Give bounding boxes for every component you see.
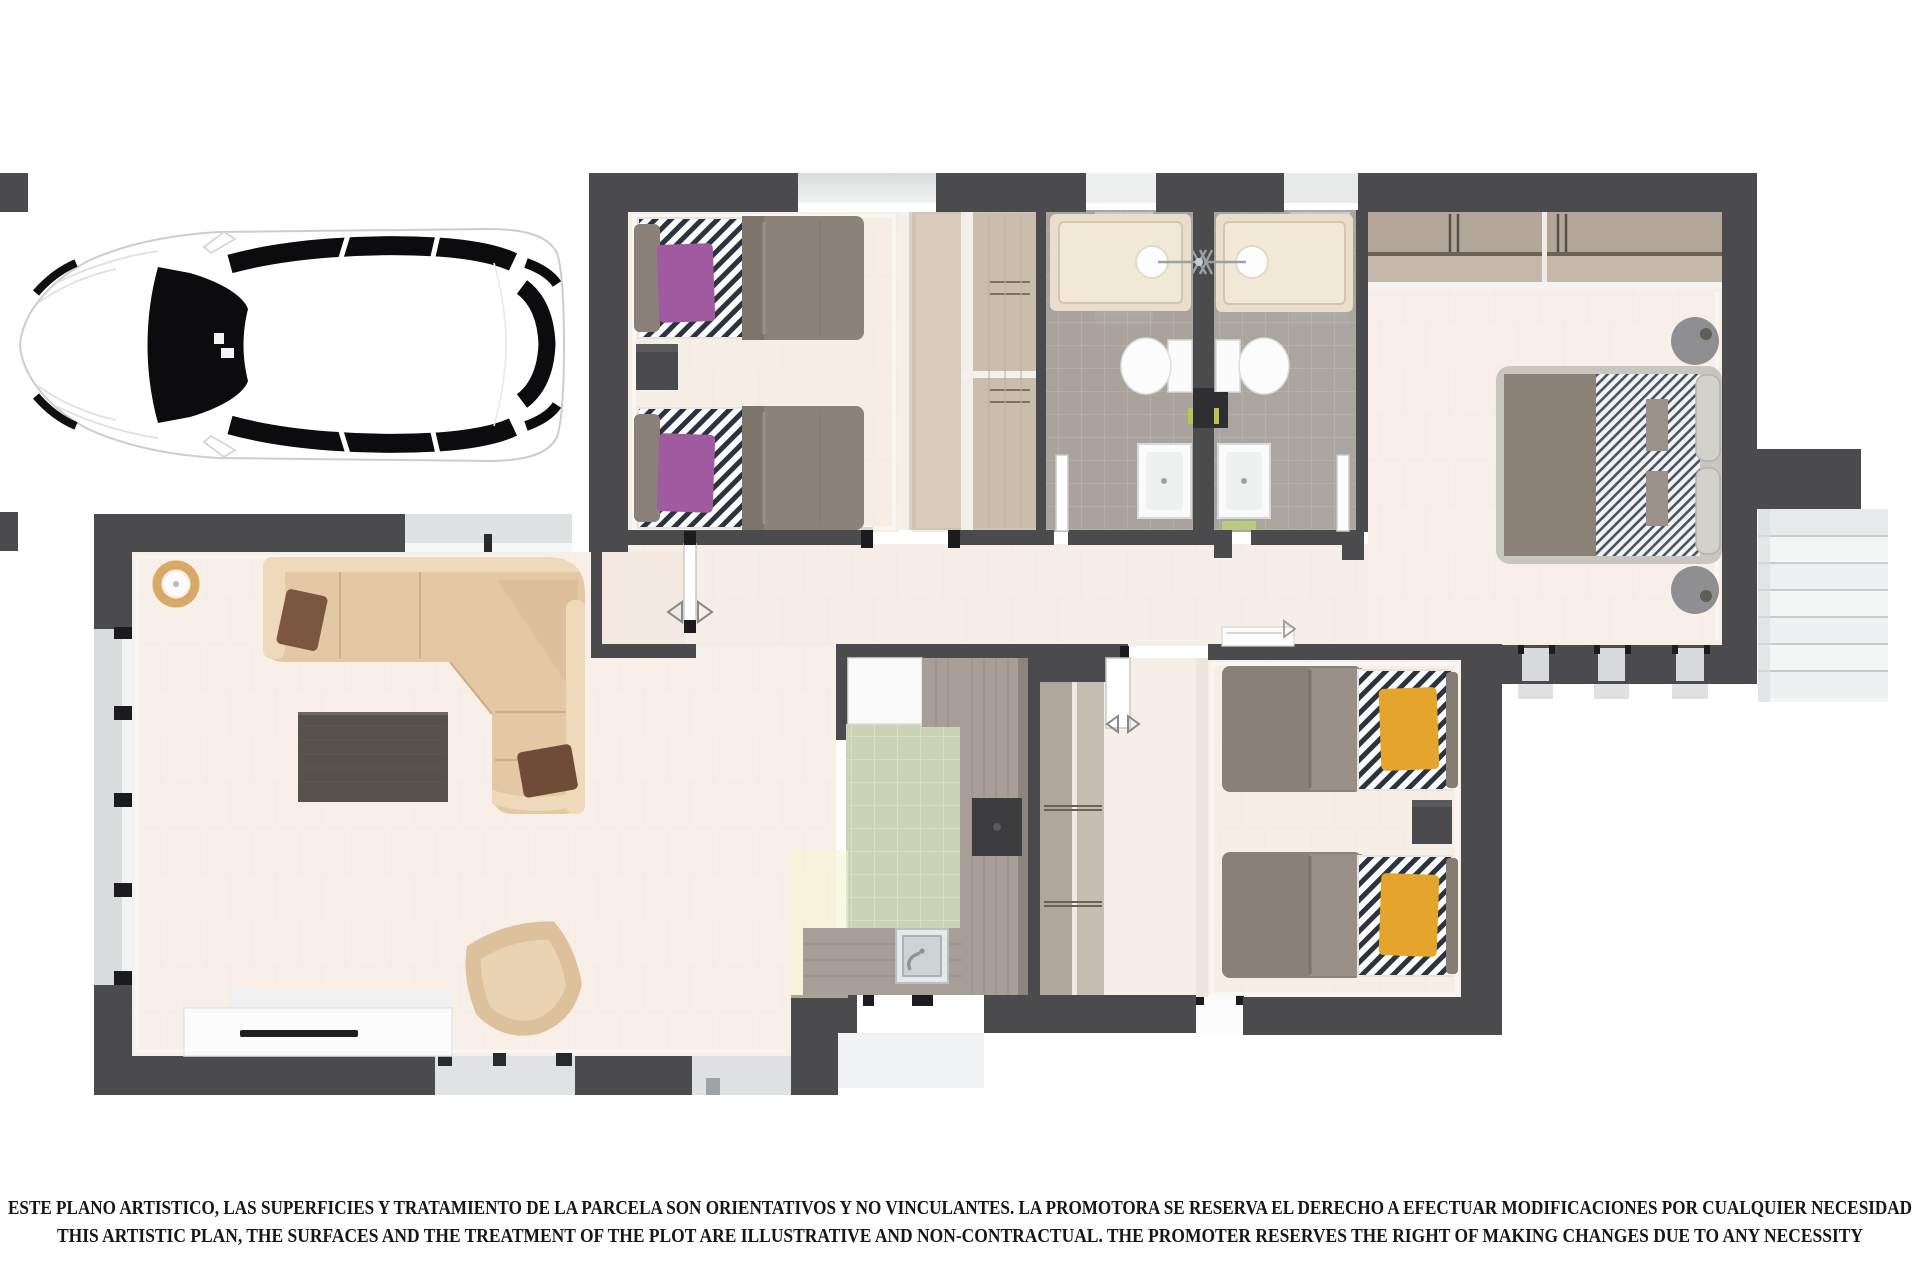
svg-text:THIS ARTISTIC PLAN, THE SURFAC: THIS ARTISTIC PLAN, THE SURFACES AND THE…	[57, 1225, 1863, 1247]
svg-text:ESTE PLANO ARTISTICO, LAS SUPE: ESTE PLANO ARTISTICO, LAS SUPERFICIES Y …	[8, 1197, 1912, 1219]
